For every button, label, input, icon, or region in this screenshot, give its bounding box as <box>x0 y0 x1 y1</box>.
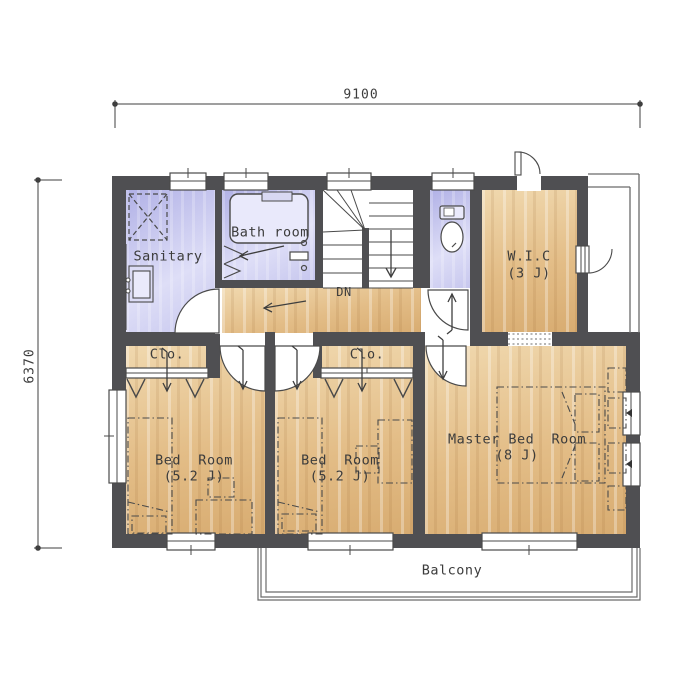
plan-linework <box>0 0 680 680</box>
desk-left <box>196 500 252 534</box>
wic-opening <box>508 332 552 346</box>
desk-middle <box>378 420 412 483</box>
room-label-sanitary: Sanitary <box>133 250 202 264</box>
bath-door-icon <box>224 241 308 279</box>
room-size-bedroom-left: (5.2 J) <box>164 470 224 484</box>
room-label-closet-left: Clo. <box>150 348 185 362</box>
balcony-right-rail <box>588 174 639 333</box>
dimension-depth-label: 6370 <box>24 348 37 383</box>
room-label-wic: W.I.C <box>507 250 550 264</box>
furniture <box>128 368 626 534</box>
master-door <box>426 346 466 386</box>
sanitary-door <box>175 289 219 333</box>
room-label-bath: Bath room <box>231 226 309 240</box>
stairs-down-label: DN <box>336 286 351 298</box>
room-label-bedroom-left: Bed Room <box>155 454 233 468</box>
washer-icon <box>129 194 167 240</box>
wic-balcony-door <box>576 246 612 273</box>
room-label-balcony: Balcony <box>422 564 482 578</box>
room-size-bedroom-middle: (5.2 J) <box>310 470 370 484</box>
wc-door <box>428 290 468 330</box>
room-size-master: (8 J) <box>495 449 538 463</box>
room-size-wic: (3 J) <box>507 267 550 281</box>
wic-top-door <box>515 152 541 191</box>
room-label-closet-middle: Clo. <box>350 348 385 362</box>
floor-plan: 9100 6370 Sanitary Bath room W.I.C (3 J)… <box>0 0 680 680</box>
room-label-bedroom-middle: Bed Room <box>301 454 379 468</box>
toilet-icon <box>440 206 464 252</box>
dimension-width-label: 9100 <box>343 89 378 102</box>
room-label-master: Master Bed Room <box>448 433 586 447</box>
